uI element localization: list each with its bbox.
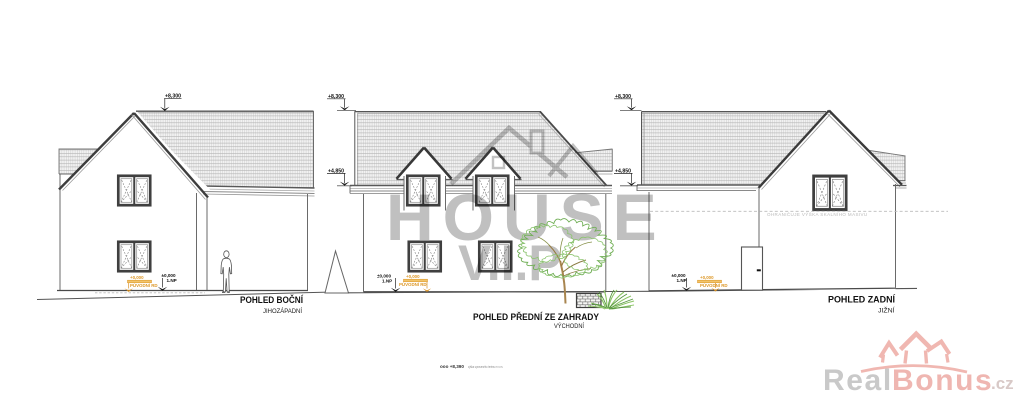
svg-text:VÝCHODNÍ: VÝCHODNÍ (554, 321, 584, 330)
svg-text:1.NP: 1.NP (167, 278, 177, 283)
svg-text:1.NP: 1.NP (677, 278, 687, 283)
svg-text:.cz: .cz (991, 374, 1014, 393)
svg-text:výška upraveného terénu m n.m.: výška upraveného terénu m n.m. (468, 365, 503, 369)
svg-text:PŮVODNÍ RD: PŮVODNÍ RD (399, 282, 427, 287)
svg-text:OHRANIČUJE VÝŠKA SKALNÍHO MASI: OHRANIČUJE VÝŠKA SKALNÍHO MASIVU (767, 211, 868, 217)
svg-text:JIHOZÁPADNÍ: JIHOZÁPADNÍ (263, 306, 302, 315)
svg-text:+0,000: +0,000 (406, 274, 420, 279)
svg-text:POHLED ZADNÍ: POHLED ZADNÍ (828, 295, 895, 306)
svg-text:+0,000: +0,000 (700, 275, 714, 280)
svg-text:POHLED PŘEDNÍ ZE ZAHRADY: POHLED PŘEDNÍ ZE ZAHRADY (473, 311, 600, 323)
svg-text:+0,000: +0,000 (130, 275, 144, 280)
svg-text:Bonus: Bonus (892, 364, 993, 397)
svg-text:POHLED BOČNÍ: POHLED BOČNÍ (240, 294, 303, 306)
svg-text:Real: Real (823, 364, 893, 397)
svg-text:PŮVODNÍ RD: PŮVODNÍ RD (700, 283, 728, 288)
svg-text:PŮVODNÍ RD: PŮVODNÍ RD (130, 283, 158, 288)
svg-text:1.NP: 1.NP (382, 278, 392, 283)
svg-text:ooo +8,390: ooo +8,390 (440, 364, 464, 369)
svg-text:V.I.P: V.I.P (458, 235, 562, 291)
svg-text:JIŽNÍ: JIŽNÍ (878, 306, 895, 315)
